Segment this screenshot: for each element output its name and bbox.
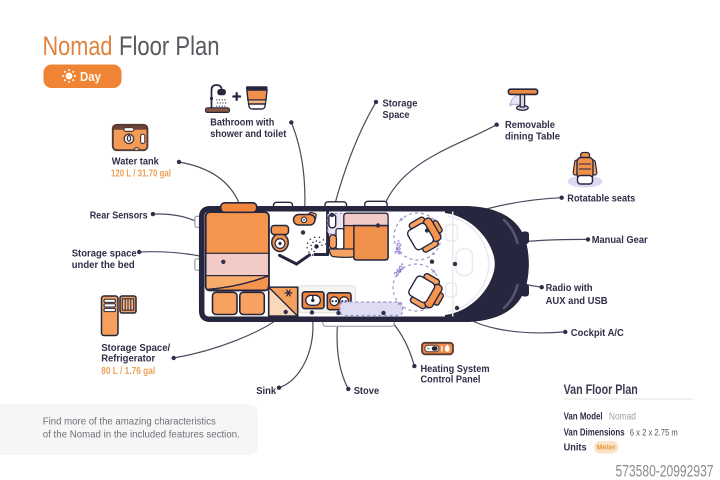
- svg-text:Cockpit A/C: Cockpit A/C: [571, 327, 624, 339]
- svg-text:Water tank: Water tank: [112, 155, 159, 167]
- svg-text:Nomad: Nomad: [609, 412, 636, 423]
- svg-text:of the Nomad in the included f: of the Nomad in the included features se…: [43, 428, 240, 440]
- svg-text:Nomad: Nomad: [43, 31, 113, 61]
- svg-text:573580-20992937: 573580-20992937: [616, 463, 714, 480]
- svg-text:Van Model: Van Model: [564, 412, 603, 423]
- svg-text:Radio with: Radio with: [546, 282, 593, 294]
- svg-text:6 x 2 x 2.75 m: 6 x 2 x 2.75 m: [630, 427, 678, 438]
- svg-text:Van Dimensions: Van Dimensions: [564, 427, 625, 438]
- svg-text:Van Floor Plan: Van Floor Plan: [564, 382, 638, 398]
- svg-text:Control Panel: Control Panel: [421, 374, 481, 386]
- svg-text:under the bed: under the bed: [72, 259, 135, 271]
- svg-text:Find more of the amazing chara: Find more of the amazing characteristics: [43, 415, 216, 427]
- svg-text:Sink: Sink: [256, 385, 276, 397]
- svg-text:Stove: Stove: [354, 385, 380, 397]
- svg-text:120 L / 31.70 gal: 120 L / 31.70 gal: [111, 169, 171, 180]
- svg-text:Floor Plan: Floor Plan: [119, 31, 220, 61]
- svg-text:dining Table: dining Table: [505, 131, 560, 143]
- svg-text:Units: Units: [564, 443, 587, 454]
- svg-text:Day: Day: [80, 70, 101, 84]
- svg-text:Refrigerator: Refrigerator: [101, 353, 155, 365]
- svg-text:shower and toilet: shower and toilet: [210, 128, 286, 140]
- svg-text:Removable: Removable: [505, 119, 555, 131]
- svg-text:Manual Gear: Manual Gear: [592, 234, 648, 246]
- svg-text:Storage space: Storage space: [72, 247, 137, 259]
- svg-text:Rotatable seats: Rotatable seats: [567, 193, 635, 205]
- svg-text:Storage: Storage: [383, 98, 418, 110]
- svg-text:Meter: Meter: [597, 443, 616, 452]
- svg-text:80 L / 1.76 gal: 80 L / 1.76 gal: [101, 366, 155, 377]
- svg-text:Rear Sensors: Rear Sensors: [90, 210, 148, 222]
- svg-text:AUX and USB: AUX and USB: [546, 295, 608, 307]
- svg-text:Space: Space: [383, 109, 410, 121]
- svg-text:Bathroom with: Bathroom with: [210, 116, 274, 128]
